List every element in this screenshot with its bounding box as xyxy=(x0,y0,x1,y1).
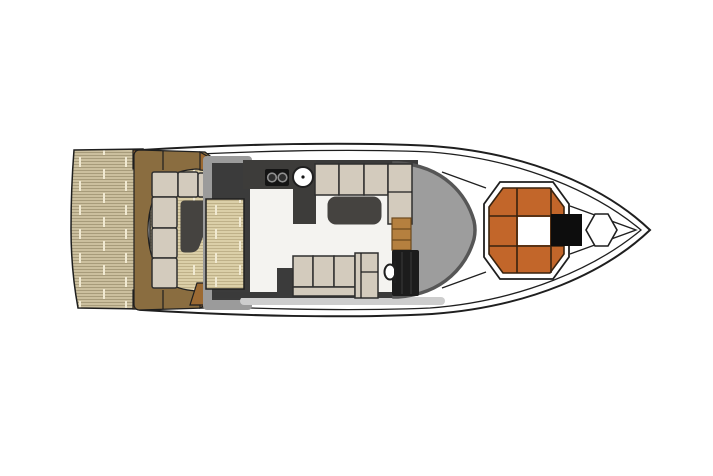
steering-wheel xyxy=(385,265,396,280)
stove-burner-left xyxy=(268,173,277,182)
aft-armchair xyxy=(355,253,378,298)
coffee-table xyxy=(328,197,381,224)
sink-drain xyxy=(301,175,304,178)
sofa-corner-chaise xyxy=(388,164,412,224)
deck-shadow-band xyxy=(240,297,445,305)
salon-entry-steps xyxy=(206,199,244,289)
stove-burner-right xyxy=(278,173,287,182)
aft-cabinet xyxy=(277,268,293,298)
swim-platform xyxy=(71,149,143,309)
sunpad-center-cutout xyxy=(518,217,550,245)
deck-plan-canvas xyxy=(0,0,713,476)
yacht-deck-plan xyxy=(0,0,713,476)
sunpad-walk-through xyxy=(551,214,582,246)
salon-sofa-forward xyxy=(315,164,388,195)
helm-console xyxy=(392,218,411,250)
